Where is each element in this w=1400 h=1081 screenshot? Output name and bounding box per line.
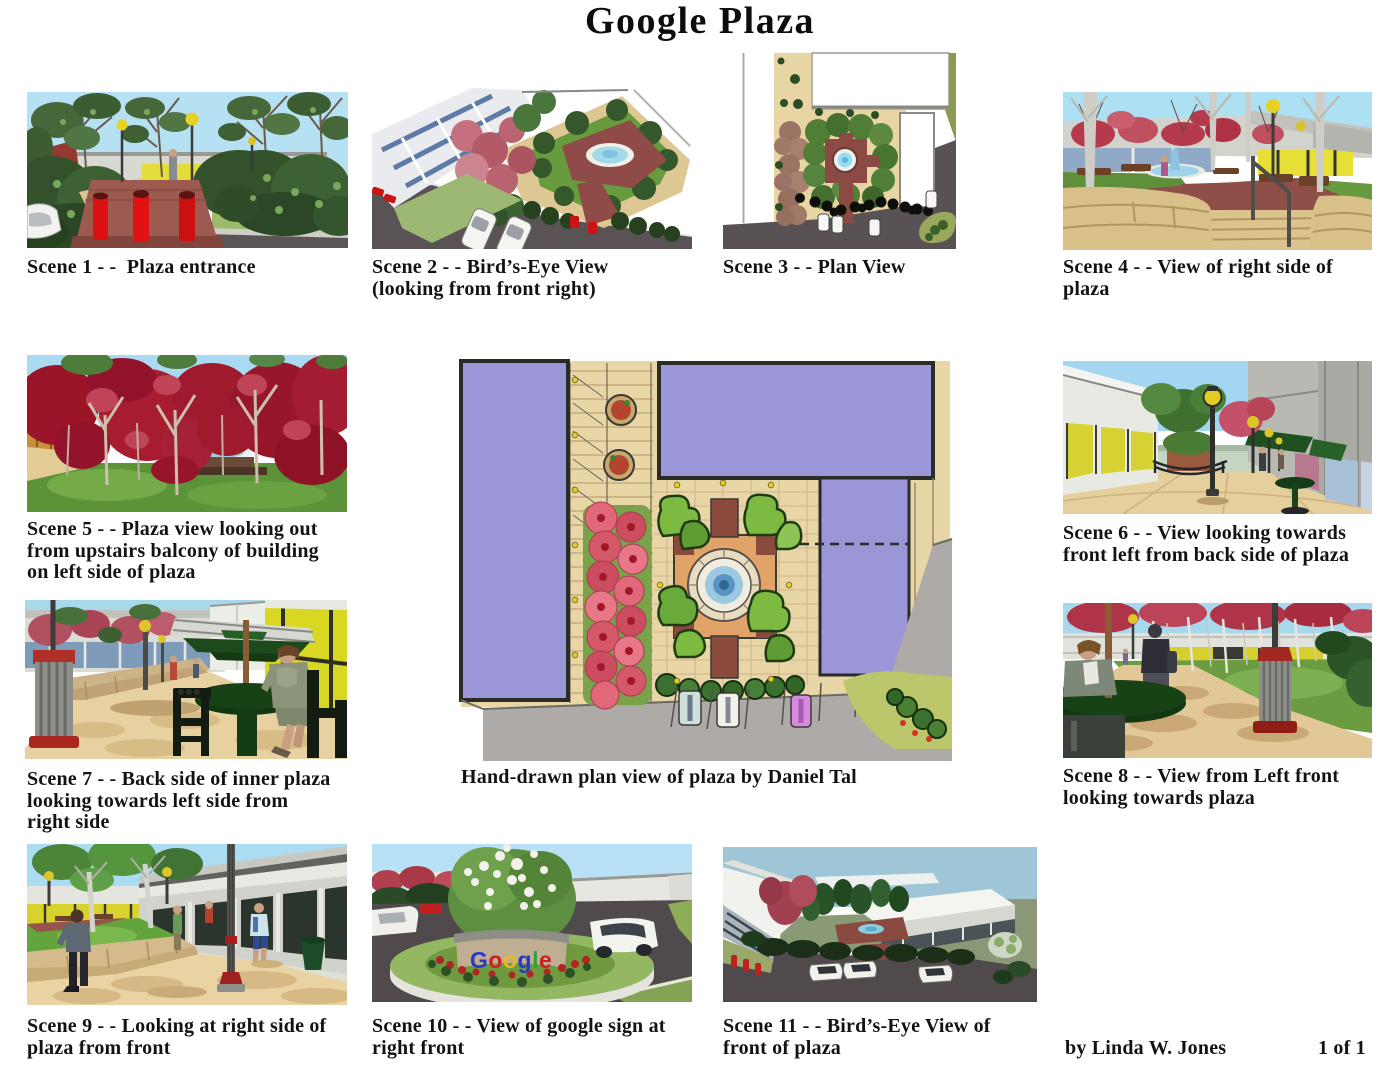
svg-text:Google: Google [470, 947, 552, 973]
